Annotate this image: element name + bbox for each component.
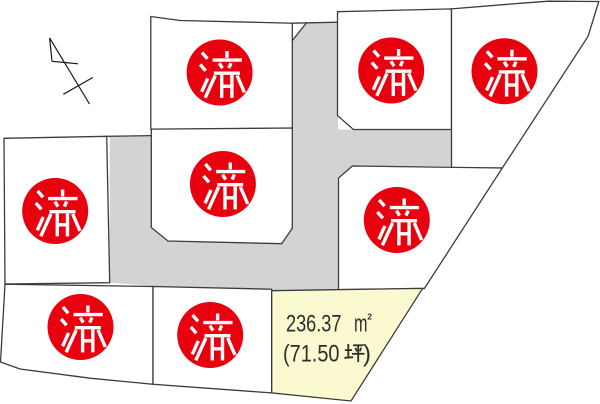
svg-text:m: m xyxy=(354,310,368,337)
svg-text:2: 2 xyxy=(367,312,372,322)
svg-text:236.37: 236.37 xyxy=(286,310,341,337)
svg-text:(71.50: (71.50 xyxy=(283,341,340,368)
